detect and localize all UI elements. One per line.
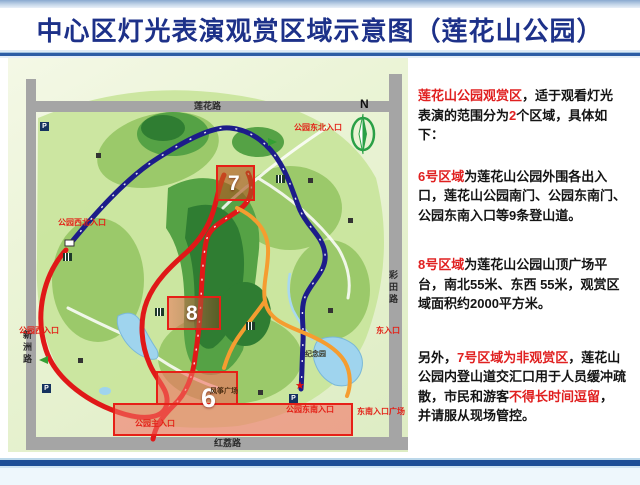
landmark-label-memorial: 纪念园 bbox=[305, 351, 326, 358]
zone-8-paragraph: 8号区域为莲花山公园山顶广场平台，南北55米、东西 55米，观赏区域面积约200… bbox=[418, 255, 626, 314]
entrance-label-west: 公园西入口 bbox=[19, 327, 59, 335]
entrance-label-northwest: 公园西北入口 bbox=[58, 219, 106, 227]
zone-8-number: 8 bbox=[186, 303, 198, 324]
zone-7-highlight: 7号区域为非观赏区 bbox=[457, 350, 568, 365]
road-label-xinzhou: 新洲路 bbox=[22, 330, 31, 366]
zone-7-number: 7 bbox=[228, 173, 240, 194]
content-area: 7 8 6 莲花路 红荔路 新洲路 彩田路 N 公园东北入口 公园西北入口 公园… bbox=[0, 58, 640, 452]
slide: 中心区灯光表演观赏区域示意图（莲花山公园） bbox=[0, 0, 640, 485]
intro-paragraph: 莲花山公园观赏区，适于观看灯光表演的范围分为2个区域，具体如下： bbox=[418, 86, 626, 145]
building-marker bbox=[96, 153, 101, 158]
top-decorative-bar bbox=[0, 0, 640, 8]
park-map: 7 8 6 莲花路 红荔路 新洲路 彩田路 N 公园东北入口 公园西北入口 公园… bbox=[8, 58, 408, 452]
page-title: 中心区灯光表演观赏区域示意图（莲花山公园） bbox=[0, 9, 640, 50]
zone-8-highlight: 8号区域 bbox=[418, 257, 464, 272]
parking-icon: P bbox=[289, 394, 298, 403]
park-map-panel: 7 8 6 莲花路 红荔路 新洲路 彩田路 N 公园东北入口 公园西北入口 公园… bbox=[0, 58, 408, 452]
info-panel: 莲花山公园观赏区，适于观看灯光表演的范围分为2个区域，具体如下： 6号区域为莲花… bbox=[408, 58, 640, 452]
entrance-label-east: 东入口 bbox=[376, 327, 400, 335]
title-divider bbox=[0, 50, 640, 58]
zone-7-paragraph: 另外，7号区域为非观赏区，莲花山公园内登山道交汇口用于人员缓冲疏散，市民和游客不… bbox=[418, 348, 626, 426]
building-marker bbox=[308, 178, 313, 183]
bottom-decorative-bar bbox=[0, 452, 640, 485]
toilet-icon bbox=[246, 322, 255, 330]
road-label-lianhua: 莲花路 bbox=[194, 102, 221, 111]
zone-6-highlight: 6号区域 bbox=[418, 169, 464, 184]
building-marker bbox=[328, 308, 333, 313]
entrance-marker bbox=[65, 240, 74, 246]
green-arrow-west-icon bbox=[39, 356, 48, 364]
entrance-label-main: 公园主入口 bbox=[135, 420, 175, 428]
building-marker bbox=[258, 390, 263, 395]
parking-icon: P bbox=[40, 122, 49, 131]
parking-icon: P bbox=[42, 384, 51, 393]
label-southeast-plaza: 东南入口广场 bbox=[357, 408, 405, 416]
toilet-icon bbox=[276, 175, 285, 183]
entrance-label-northeast: 公园东北入口 bbox=[294, 124, 342, 132]
intro-highlight: 莲花山公园观赏区 bbox=[418, 88, 522, 103]
compass-icon bbox=[352, 114, 374, 154]
road-left bbox=[26, 79, 36, 441]
building-marker bbox=[348, 218, 353, 223]
destination-star-icon: ★ bbox=[295, 381, 305, 392]
toilet-icon bbox=[155, 308, 164, 316]
road-right bbox=[389, 74, 402, 446]
landmark-label-kite-plaza: 风筝广场 bbox=[210, 388, 238, 395]
dense-forest bbox=[141, 115, 185, 141]
toilet-icon bbox=[63, 253, 72, 261]
no-stay-highlight: 不得长时间逗留 bbox=[509, 389, 600, 404]
road-label-hongli: 红荔路 bbox=[214, 439, 241, 448]
pond bbox=[99, 387, 111, 395]
road-label-caitian: 彩田路 bbox=[388, 270, 397, 306]
compass-north-label: N bbox=[360, 98, 369, 110]
building-marker bbox=[78, 358, 83, 363]
entrance-label-southeast: 公园东南入口 bbox=[286, 406, 334, 414]
zone-6-paragraph: 6号区域为莲花山公园外围各出入口，莲花山公园南门、公园东南门、公园东南入口等9条… bbox=[418, 167, 626, 226]
